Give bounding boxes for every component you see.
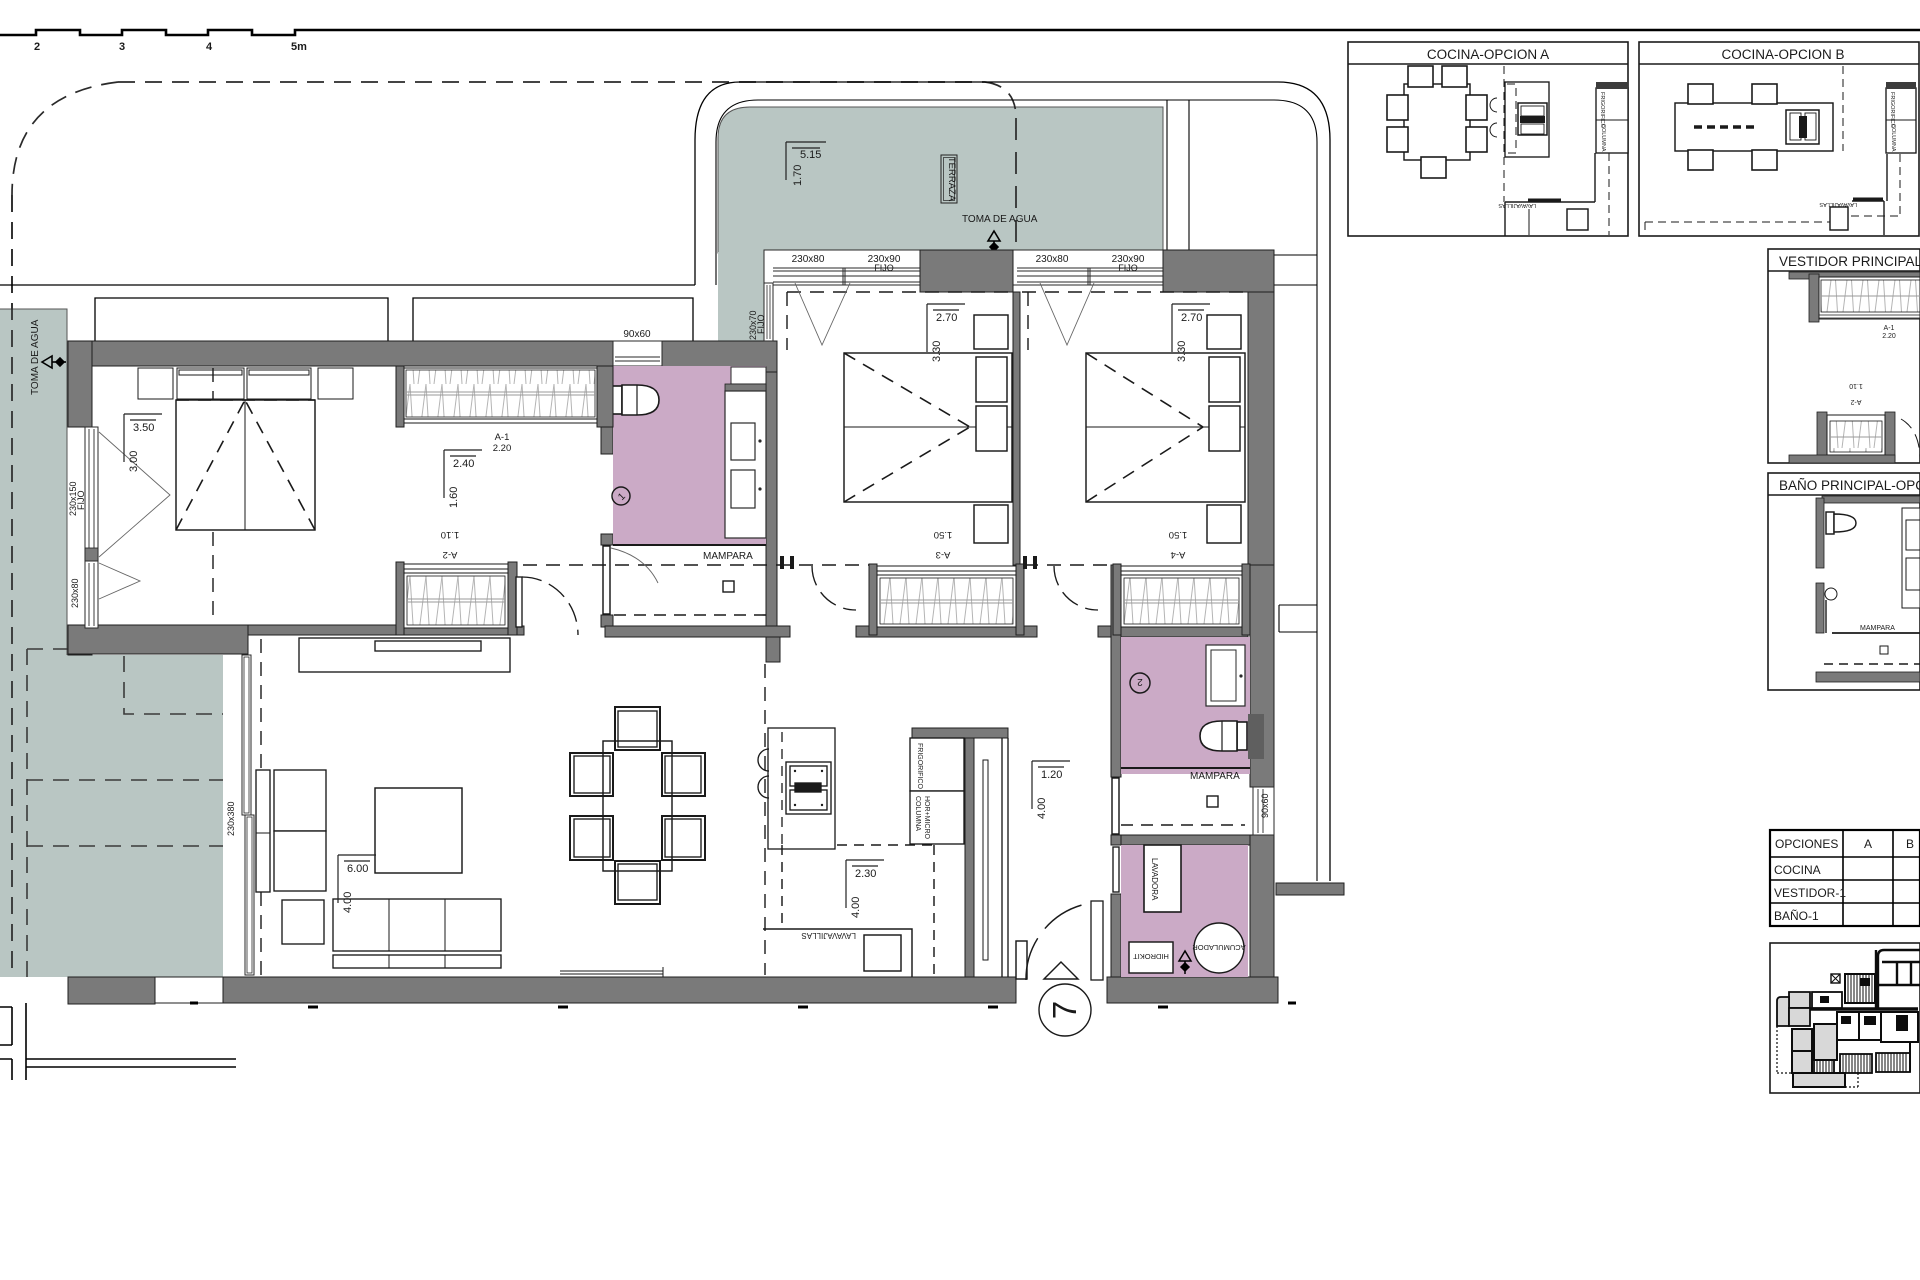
svg-text:3.00: 3.00 [128, 451, 140, 472]
svg-text:2.20: 2.20 [493, 443, 512, 454]
svg-text:2.70: 2.70 [1181, 312, 1202, 324]
svg-text:2.40: 2.40 [453, 458, 474, 470]
svg-text:6.00: 6.00 [347, 863, 368, 875]
svg-text:HOR+MICRO: HOR+MICRO [923, 796, 930, 840]
svg-text:2.30: 2.30 [855, 868, 876, 880]
svg-text:230x80: 230x80 [70, 578, 80, 608]
svg-text:1.70: 1.70 [792, 165, 804, 186]
svg-text:COLUMNA: COLUMNA [1600, 124, 1606, 152]
svg-text:MAMPARA: MAMPARA [1860, 625, 1895, 632]
svg-text:1.50: 1.50 [934, 529, 953, 540]
svg-text:A-1: A-1 [1884, 325, 1895, 332]
svg-text:3.30: 3.30 [1176, 341, 1188, 362]
svg-text:2.20: 2.20 [1882, 333, 1896, 340]
svg-text:BAÑO-1: BAÑO-1 [1774, 909, 1819, 923]
svg-text:1.10: 1.10 [1849, 382, 1863, 389]
svg-text:LAVAVAJILLAS: LAVAVAJILLAS [1819, 201, 1857, 207]
svg-text:230x380: 230x380 [226, 801, 236, 836]
svg-text:LAVADORA: LAVADORA [1150, 858, 1159, 901]
svg-text:230x80: 230x80 [1036, 254, 1069, 265]
svg-text:TOMA DE AGUA: TOMA DE AGUA [962, 214, 1038, 225]
svg-text:VESTIDOR PRINCIPAL-O: VESTIDOR PRINCIPAL-O [1779, 254, 1920, 269]
svg-text:4.00: 4.00 [342, 892, 354, 913]
svg-text:2: 2 [1137, 676, 1143, 687]
svg-text:B: B [1906, 837, 1914, 851]
svg-text:MAMPARA: MAMPARA [703, 551, 753, 562]
svg-text:COLUMNA: COLUMNA [1890, 124, 1896, 152]
svg-text:COCINA-OPCION B: COCINA-OPCION B [1721, 47, 1844, 62]
svg-text:COLUMNA: COLUMNA [914, 796, 921, 831]
svg-text:MAMPARA: MAMPARA [1190, 771, 1240, 782]
svg-text:3: 3 [119, 41, 125, 53]
svg-text:A-2: A-2 [1850, 398, 1861, 405]
svg-text:BAÑO PRINCIPAL-OPC: BAÑO PRINCIPAL-OPC [1779, 478, 1920, 493]
svg-text:1.50: 1.50 [1169, 529, 1188, 540]
svg-text:1.60: 1.60 [448, 487, 460, 508]
svg-text:A-4: A-4 [1171, 549, 1186, 560]
svg-text:FRIGORIFICO: FRIGORIFICO [916, 743, 923, 789]
svg-text:LAVAVAJILLAS: LAVAVAJILLAS [1498, 202, 1536, 208]
svg-text:LAVAVAJILLAS: LAVAVAJILLAS [801, 931, 856, 940]
svg-text:1.10: 1.10 [441, 529, 460, 540]
svg-text:1.20: 1.20 [1041, 769, 1062, 781]
svg-text:2: 2 [34, 41, 40, 53]
svg-text:4.00: 4.00 [1036, 798, 1048, 819]
svg-text:TOMA DE AGUA: TOMA DE AGUA [30, 319, 41, 395]
svg-text:4.00: 4.00 [850, 897, 862, 918]
svg-text:COCINA-OPCION A: COCINA-OPCION A [1427, 47, 1549, 62]
svg-text:5m: 5m [291, 41, 307, 53]
svg-text:ACUMULADOR: ACUMULADOR [1192, 943, 1246, 952]
svg-text:FIJO: FIJO [756, 315, 766, 335]
svg-text:3.30: 3.30 [931, 341, 943, 362]
svg-text:HIDROKIT: HIDROKIT [1133, 952, 1169, 961]
svg-text:2.70: 2.70 [936, 312, 957, 324]
svg-text:A-1: A-1 [495, 432, 510, 443]
svg-text:FIJO: FIJO [874, 263, 894, 273]
svg-text:COCINA: COCINA [1774, 863, 1821, 877]
svg-text:VESTIDOR-1: VESTIDOR-1 [1774, 886, 1846, 900]
svg-text:OPCIONES: OPCIONES [1775, 837, 1838, 851]
svg-text:FIJO: FIJO [1118, 263, 1138, 273]
svg-text:4: 4 [206, 41, 213, 53]
svg-text:90x60: 90x60 [623, 329, 651, 340]
svg-text:7: 7 [1046, 1001, 1083, 1019]
svg-text:A-3: A-3 [936, 549, 951, 560]
svg-text:230x80: 230x80 [792, 254, 825, 265]
svg-text:A: A [1864, 837, 1872, 851]
svg-text:5.15: 5.15 [800, 149, 821, 161]
svg-text:FIJO: FIJO [76, 491, 86, 511]
svg-text:A-2: A-2 [443, 549, 458, 560]
svg-text:TERRAZA: TERRAZA [946, 157, 957, 202]
svg-text:90x60: 90x60 [1260, 793, 1270, 818]
svg-text:3.50: 3.50 [133, 422, 154, 434]
